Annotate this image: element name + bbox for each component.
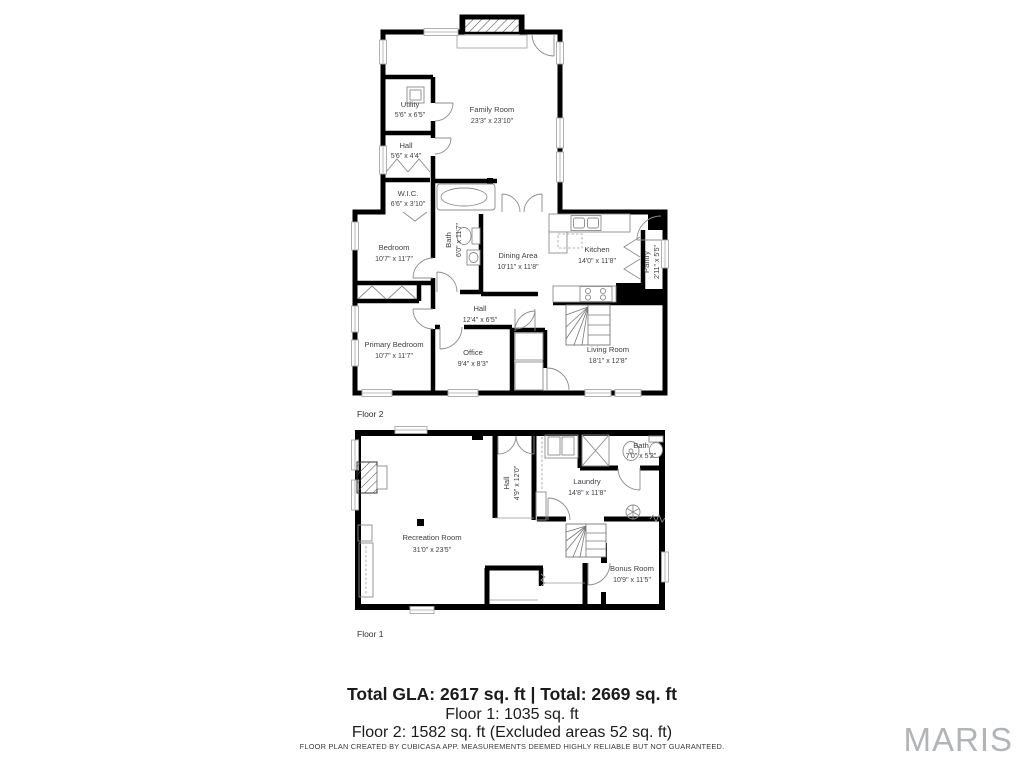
floor1-caption: Floor 1 bbox=[357, 629, 384, 639]
total-gla-line: Total GLA: 2617 sq. ft | Total: 2669 sq.… bbox=[347, 684, 677, 704]
svg-text:4'9" x 12'0": 4'9" x 12'0" bbox=[514, 465, 521, 500]
disclaimer: FLOOR PLAN CREATED BY CUBICASA APP. MEAS… bbox=[300, 742, 725, 751]
room-label: Bedroom bbox=[379, 243, 410, 252]
closet-shelf bbox=[515, 333, 543, 360]
floor2-plan: Family Room 23'3" x 23'10" Utility 5'6" … bbox=[352, 17, 669, 419]
room-label: Hall bbox=[473, 304, 486, 313]
lower-counter bbox=[553, 286, 616, 302]
room-dims: 9'4" x 8'3" bbox=[458, 361, 489, 368]
svg-text:2'11" x 5'5": 2'11" x 5'5" bbox=[654, 244, 661, 278]
room-dims: 5'6" x 4'4" bbox=[391, 153, 422, 160]
room-label: Kitchen bbox=[584, 245, 609, 254]
room-label: Laundry bbox=[573, 477, 601, 486]
hearth bbox=[457, 35, 527, 48]
closet-shelf bbox=[515, 362, 543, 390]
floor1-area-line: Floor 1: 1035 sq. ft bbox=[445, 706, 579, 723]
room-dims: 23'3" x 23'10" bbox=[471, 118, 514, 125]
svg-text:Pantry: Pantry bbox=[642, 251, 651, 273]
floor2-area-line: Floor 2: 1582 sq. ft (Excluded areas 52 … bbox=[352, 724, 672, 741]
bonus-wall-stub bbox=[601, 592, 606, 610]
floor1-room-labels: Recreation Room 31'0" x 23'5" Hall 4'9" … bbox=[402, 441, 656, 584]
kitchen-chase-block bbox=[648, 212, 665, 230]
svg-text:6'0" x 11'7": 6'0" x 11'7" bbox=[456, 222, 463, 256]
room-label: Family Room bbox=[470, 105, 515, 114]
toilet bbox=[472, 228, 480, 244]
floor1-plan: Recreation Room 31'0" x 23'5" Hall 4'9" … bbox=[352, 427, 669, 640]
room-label: Utility bbox=[401, 100, 420, 109]
room-label: Living Room bbox=[587, 345, 629, 354]
fireplace bbox=[357, 462, 377, 493]
room-label: W.I.C. bbox=[398, 189, 419, 198]
room-dims: 5'6" x 6'5" bbox=[395, 112, 426, 119]
room-dims: 6'6" x 3'10" bbox=[391, 201, 426, 208]
floor-plan-page: Family Room 23'3" x 23'10" Utility 5'6" … bbox=[0, 0, 1024, 768]
room-dims: 31'0" x 23'5" bbox=[413, 547, 452, 554]
laundry-shelf bbox=[536, 492, 546, 520]
svg-text:Hall: Hall bbox=[502, 476, 511, 489]
room-label: Dining Area bbox=[498, 251, 538, 260]
toilet bbox=[649, 436, 663, 442]
floor1-stairs bbox=[566, 524, 606, 557]
washer-dryer bbox=[545, 435, 578, 458]
support-post bbox=[417, 519, 424, 526]
room-dims: 10'7" x 11'7" bbox=[375, 353, 413, 360]
room-dims: 14'0" x 11'8" bbox=[578, 258, 616, 265]
kitchen-counter bbox=[549, 214, 630, 232]
room-dims: 10'7" x 11'7" bbox=[375, 256, 413, 263]
svg-text:Bath: Bath bbox=[444, 232, 453, 248]
floor-plan-drawing: Family Room 23'3" x 23'10" Utility 5'6" … bbox=[0, 0, 1024, 768]
room-dims: 18'1" x 12'8" bbox=[589, 358, 628, 365]
room-label-rotated: Bath 6'0" x 11'7" bbox=[444, 222, 463, 256]
room-label: Bonus Room bbox=[610, 564, 654, 573]
room-label: Office bbox=[463, 348, 483, 357]
fireplace-chimney bbox=[464, 18, 520, 33]
wall-tab bbox=[472, 430, 483, 440]
refrigerator-block bbox=[616, 283, 643, 305]
room-dims: 10'11" x 11'8" bbox=[497, 264, 539, 271]
room-dims: 12'4" x 6'5" bbox=[463, 317, 498, 324]
room-label: Recreation Room bbox=[402, 533, 461, 542]
kitchen-corner-block bbox=[643, 289, 665, 305]
room-dims: 7'0" x 5'2" bbox=[626, 453, 657, 460]
floor2-stairs bbox=[566, 305, 610, 345]
maris-watermark: MARIS bbox=[903, 721, 1013, 758]
room-dims: 14'8" x 11'8" bbox=[568, 490, 606, 497]
room-dims: 10'9" x 11'5" bbox=[613, 577, 651, 584]
room-label: Hall bbox=[399, 141, 412, 150]
footer: Total GLA: 2617 sq. ft | Total: 2669 sq.… bbox=[300, 684, 725, 751]
room-label-rotated: Hall 4'9" x 12'0" bbox=[502, 465, 521, 500]
floor2-caption: Floor 2 bbox=[357, 409, 384, 419]
room-label: Bath bbox=[633, 441, 649, 450]
room-label: Primary Bedroom bbox=[364, 340, 423, 349]
